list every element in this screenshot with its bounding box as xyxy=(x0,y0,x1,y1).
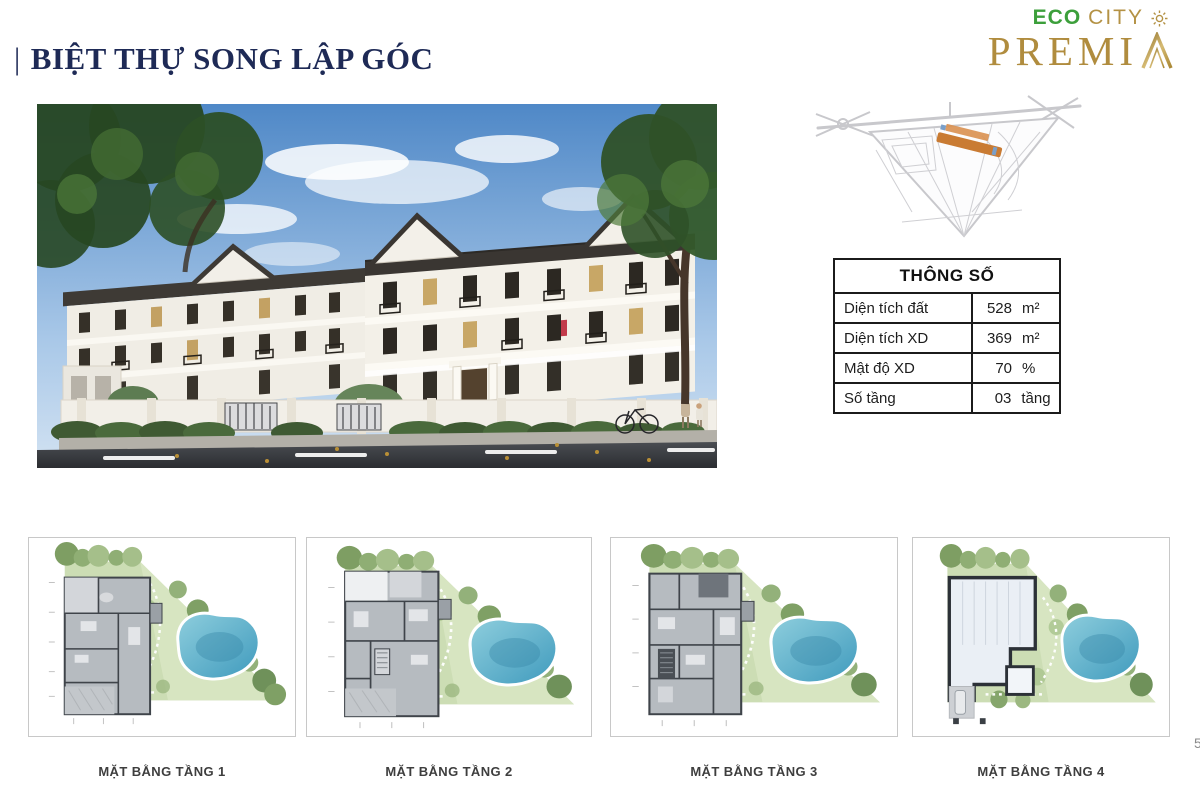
floor-plan-4-image xyxy=(912,537,1170,737)
spec-value: 03 xyxy=(981,390,1011,407)
logo-city-text: CITY xyxy=(1088,6,1144,30)
figure-on-balcony xyxy=(561,320,567,336)
building-footprint xyxy=(649,574,754,715)
table-row: Diện tích XD 369m² xyxy=(834,323,1060,353)
floor-plan-4: MẶT BẰNG TẦNG 4 xyxy=(912,537,1170,779)
villa-render-image xyxy=(37,104,717,468)
building-footprint xyxy=(345,572,451,717)
floor-plans-row: MẶT BẰNG TẦNG 1 xyxy=(28,537,1170,779)
spec-label: Diện tích XD xyxy=(834,323,972,353)
page-title: |BIỆT THỰ SONG LẬP GÓC xyxy=(14,41,433,77)
floor-plan-3-image xyxy=(610,537,898,737)
entry-door xyxy=(461,368,487,402)
spec-value: 369 xyxy=(982,330,1012,347)
logo-premia-wordmark: PREMI xyxy=(974,32,1174,68)
logo-premia-prefix: PREMI xyxy=(988,35,1138,68)
floor-plan-1-label: MẶT BẰNG TẦNG 1 xyxy=(28,764,296,779)
logo-eco-text: ECO xyxy=(1033,6,1082,30)
spec-label: Số tầng xyxy=(834,383,972,413)
specs-table-title: THÔNG SỐ xyxy=(834,259,1060,293)
spec-unit: m² xyxy=(1022,300,1050,317)
table-row: Số tầng 03tầng xyxy=(834,383,1060,413)
floor-plan-1: MẶT BẰNG TẦNG 1 xyxy=(28,537,296,779)
floor-plan-2-image xyxy=(306,537,592,737)
premia-a-triangle-icon xyxy=(1140,32,1174,70)
spec-label: Diện tích đất xyxy=(834,293,972,323)
floor-plan-2-label: MẶT BẰNG TẦNG 2 xyxy=(306,764,592,779)
masterplan-map xyxy=(812,92,1090,250)
table-row: Diện tích đất 528m² xyxy=(834,293,1060,323)
page-title-text: BIỆT THỰ SONG LẬP GÓC xyxy=(31,41,434,76)
title-bar-glyph: | xyxy=(14,41,21,76)
specs-table: THÔNG SỐ Diện tích đất 528m² Diện tích X… xyxy=(833,258,1061,414)
spec-unit: m² xyxy=(1022,330,1050,347)
spec-unit: % xyxy=(1022,360,1050,377)
masterplan-location-map xyxy=(812,92,1090,250)
floor-plan-3: MẶT BẰNG TẦNG 3 xyxy=(610,537,898,779)
floor-plan-3-label: MẶT BẰNG TẦNG 3 xyxy=(610,764,898,779)
brochure-page: |BIỆT THỰ SONG LẬP GÓC ECO CITY PREMI xyxy=(0,0,1200,808)
spec-value: 70 xyxy=(982,360,1012,377)
floor-plan-1-image xyxy=(28,537,296,737)
brand-logo: ECO CITY PREMI xyxy=(974,6,1174,68)
floor-plan-4-label: MẶT BẰNG TẦNG 4 xyxy=(912,764,1170,779)
floor-plan-2: MẶT BẰNG TẦNG 2 xyxy=(306,537,592,779)
villa-render xyxy=(37,104,717,468)
spec-value: 528 xyxy=(982,300,1012,317)
building-footprint xyxy=(65,578,162,715)
sun-icon xyxy=(1151,10,1168,27)
table-row: Mật độ XD 70% xyxy=(834,353,1060,383)
spec-label: Mật độ XD xyxy=(834,353,972,383)
page-number-fragment: 5 xyxy=(1194,735,1200,751)
spec-unit: tầng xyxy=(1021,390,1050,407)
brand-logo-top: ECO CITY xyxy=(974,6,1168,30)
